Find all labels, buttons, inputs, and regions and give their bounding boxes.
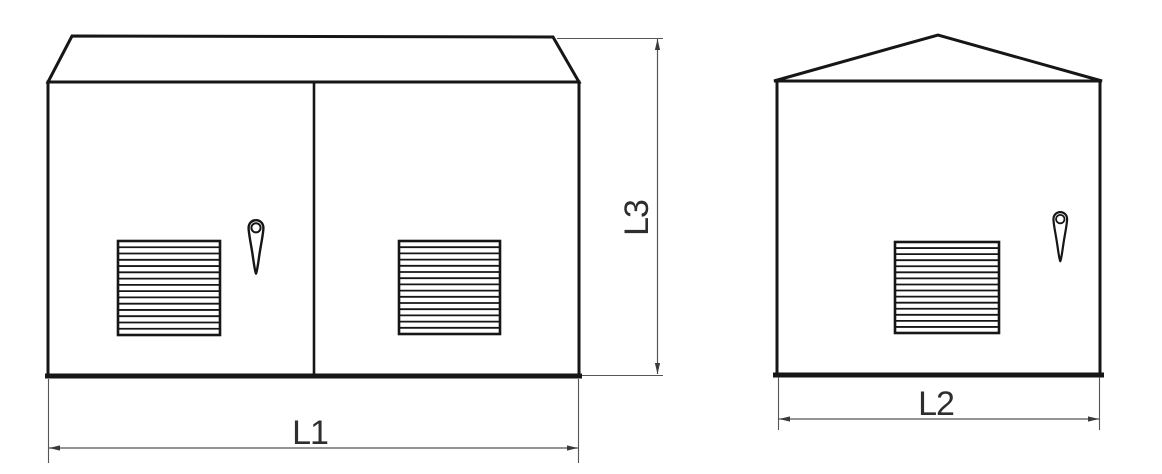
l3-label: L3 <box>618 200 656 236</box>
drawing-canvas: L1 L3 L2 <box>0 0 1162 474</box>
grille-frame <box>118 241 220 335</box>
side-roof <box>774 35 1102 81</box>
cabinet-technical-drawing: L1 L3 L2 <box>0 0 1162 474</box>
side-view <box>773 35 1104 375</box>
l3-arrow-bottom <box>655 363 660 374</box>
ventilation-grille-left-door <box>118 241 220 335</box>
grille-frame <box>399 241 500 334</box>
l2-arrow-right <box>1088 416 1099 421</box>
front-view <box>45 36 582 376</box>
ventilation-grille-right-door <box>399 241 500 334</box>
l1-label: L1 <box>292 414 328 452</box>
l1-arrow-left <box>49 445 60 450</box>
l2-label: L2 <box>918 385 954 423</box>
l3-arrow-top <box>655 39 660 50</box>
l1-arrow-right <box>567 445 578 450</box>
dimension-l2: L2 <box>779 377 1100 430</box>
dimension-l1: L1 <box>49 379 579 463</box>
ventilation-grille-side <box>895 242 999 333</box>
front-roof <box>48 36 579 82</box>
l2-arrow-left <box>779 416 790 421</box>
grille-frame <box>895 242 999 333</box>
